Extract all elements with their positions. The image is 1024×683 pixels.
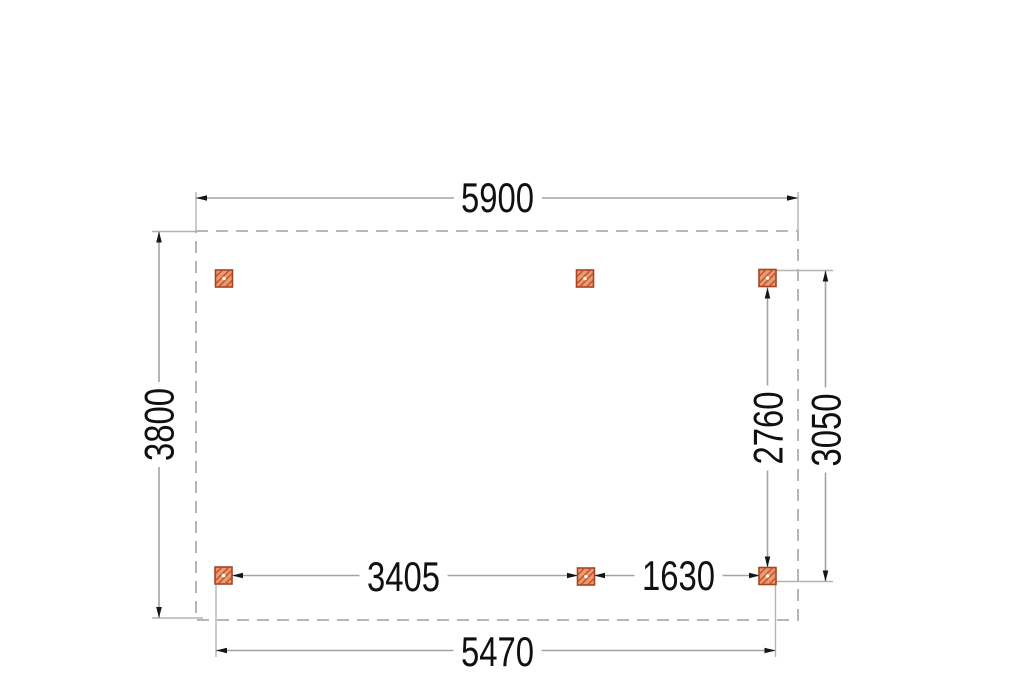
post-center-dot xyxy=(766,574,770,578)
arrow-icon xyxy=(823,571,829,582)
post-bottom-left xyxy=(215,567,232,584)
arrow-icon xyxy=(823,271,829,282)
label-masks xyxy=(140,179,844,669)
posts xyxy=(215,270,776,586)
post-center-dot xyxy=(583,277,587,281)
dim-label-posts-outer-width: 5470 xyxy=(461,628,534,675)
post-bottom-center xyxy=(578,568,595,585)
arrow-icon xyxy=(196,195,207,201)
extension-lines xyxy=(152,192,833,657)
dim-label-overall-width: 5900 xyxy=(461,174,534,221)
arrow-icon xyxy=(594,573,605,579)
dim-label-posts-outer-depth: 3050 xyxy=(803,394,850,467)
arrow-icon xyxy=(765,648,776,654)
post-bottom-right xyxy=(759,568,776,585)
arrow-icon xyxy=(765,557,771,568)
post-top-center xyxy=(577,270,594,287)
post-center-dot xyxy=(766,276,770,280)
dim-label-overall-depth: 3800 xyxy=(136,388,183,461)
post-top-right xyxy=(759,270,776,287)
dim-label-span-right: 1630 xyxy=(642,552,715,599)
arrow-icon xyxy=(216,648,227,654)
dimension-labels: 5900 3800 2760 3050 3405 1630 5470 xyxy=(136,174,850,675)
plan-drawing-page: 5900 3800 2760 3050 3405 1630 5470 xyxy=(0,0,1024,683)
arrow-icon xyxy=(232,573,243,579)
arrow-icon xyxy=(156,232,162,243)
arrow-icon xyxy=(156,607,162,618)
floor-plan-svg: 5900 3800 2760 3050 3405 1630 5470 xyxy=(0,0,1024,683)
dim-label-span-left: 3405 xyxy=(367,553,440,600)
post-center-dot xyxy=(584,575,588,579)
dimension-lines xyxy=(159,198,826,651)
dim-label-posts-clear-depth: 2760 xyxy=(745,392,792,465)
post-center-dot xyxy=(222,574,226,578)
post-center-dot xyxy=(222,277,226,281)
dimension-arrows xyxy=(156,195,828,653)
arrow-icon xyxy=(765,288,771,299)
arrow-icon xyxy=(787,195,798,201)
post-top-left xyxy=(216,270,233,287)
arrow-icon xyxy=(567,573,578,579)
